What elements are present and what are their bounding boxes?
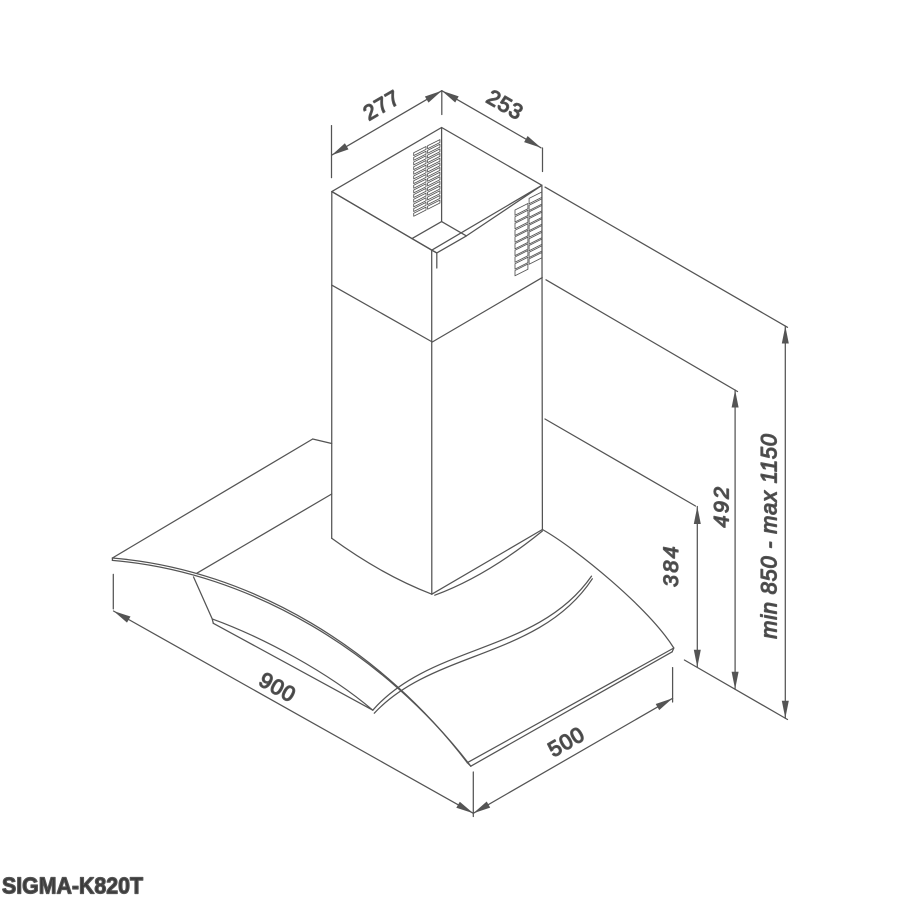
svg-text:253: 253	[482, 85, 527, 125]
svg-text:SIGMA-K820T: SIGMA-K820T	[2, 873, 143, 899]
svg-text:min 850 - max 1150: min 850 - max 1150	[757, 433, 782, 638]
svg-text:500: 500	[544, 722, 589, 762]
svg-text:900: 900	[255, 668, 300, 708]
svg-text:384: 384	[659, 544, 683, 587]
svg-text:277: 277	[359, 85, 404, 125]
svg-text:492: 492	[710, 484, 734, 527]
